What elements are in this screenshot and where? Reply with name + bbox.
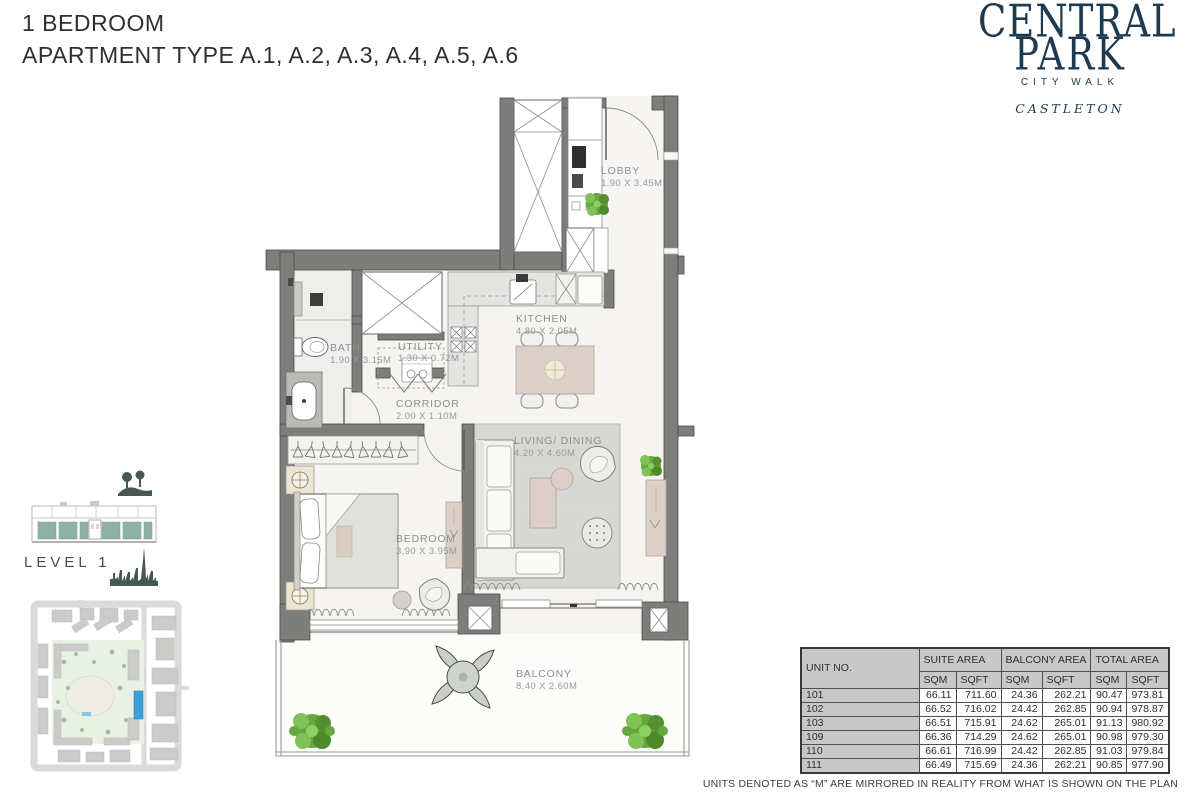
room-label-bath: BATH: [330, 342, 360, 354]
toilet-icon: [294, 338, 328, 357]
level-label: LEVEL 1: [24, 554, 111, 571]
table-row: 102 66.52 716.02 24.42 262.85 90.94 978.…: [801, 702, 1169, 716]
bedroom-side-table: [393, 591, 411, 609]
mirror-disclaimer: UNITS DENOTED AS “M” ARE MIRRORED IN REA…: [703, 778, 1178, 790]
room-dims-living: 4.20 X 4.60M: [514, 448, 575, 459]
room-dims-balcony: 8.40 X 2.60M: [516, 681, 577, 692]
table-row: 111 66.49 715.69 24.36 262.21 90.85 977.…: [801, 758, 1169, 773]
side-table: [551, 468, 573, 490]
unit-cell: 111: [801, 758, 919, 773]
hood-hatch-icon: [556, 274, 576, 304]
plant-lobby: [585, 193, 609, 216]
page-title: 1 BEDROOM APARTMENT TYPE A.1, A.2, A.3, …: [22, 10, 519, 69]
sqm-header: SQM: [1091, 671, 1127, 688]
room-dims-utility: 1.30 X 0.72M: [398, 353, 459, 364]
room-dims-bedroom: 3.90 X 3.95M: [396, 546, 457, 557]
nightstand: [286, 466, 314, 494]
sqm-header: SQM: [919, 671, 956, 688]
plant-balcony-right: [622, 713, 668, 749]
unit-cell: 109: [801, 730, 919, 744]
floor-plan: LOBBY 1.90 X 3.45M KITCHEN 4.80 X 2.05M …: [248, 85, 712, 775]
sqm-header: SQM: [1001, 671, 1042, 688]
room-dims-bath: 1.90 X 3.15M: [330, 355, 391, 366]
table-row: 109 66.36 714.29 24.62 265.01 90.98 979.…: [801, 730, 1169, 744]
brand-logo: CENTRAL PARK CITY WALK CASTLETON: [978, 2, 1162, 116]
fridge-icon: [578, 276, 602, 304]
duct-box: [566, 228, 608, 273]
logo-park: PARK: [978, 34, 1162, 75]
room-label-bedroom: BEDROOM: [396, 533, 456, 545]
shower-panel-icon: [294, 282, 302, 316]
unit-cell: 102: [801, 702, 919, 716]
unit-cell: 101: [801, 688, 919, 702]
balcony-area-header: BALCONY AREA: [1001, 648, 1091, 671]
room-label-living: LIVING/ DINING: [514, 435, 602, 447]
room-dims-corridor: 2.00 X 1.10M: [396, 411, 457, 422]
unit-cell: 103: [801, 716, 919, 730]
room-label-kitchen: KITCHEN: [516, 313, 568, 325]
bed: [294, 492, 398, 590]
site-map: [24, 592, 189, 780]
title-line2: APARTMENT TYPE A.1, A.2, A.3, A.4, A.5, …: [22, 42, 519, 69]
unit-cell: 110: [801, 744, 919, 758]
wardrobe: [288, 436, 418, 464]
logo-castleton: CASTLETON: [978, 101, 1162, 116]
room-dims-kitchen: 4.80 X 2.05M: [516, 326, 577, 337]
city-skyline-icon: [110, 546, 158, 586]
sqft-header: SQFT: [1042, 671, 1091, 688]
table-row: 101 66.11 711.60 24.36 262.21 90.47 973.…: [801, 688, 1169, 702]
coffee-table: [530, 478, 556, 528]
unit-area-table: UNIT NO. SUITE AREA BALCONY AREA TOTAL A…: [800, 647, 1170, 774]
sqft-header: SQFT: [1127, 671, 1169, 688]
bedroom-sliding-door: [310, 620, 458, 632]
building-cross-section: [30, 500, 158, 550]
title-line1: 1 BEDROOM: [22, 10, 519, 37]
living-tv-console: [646, 480, 666, 556]
room-dims-lobby: 1.90 X 3.45M: [601, 178, 662, 189]
room-label-corridor: CORRIDOR: [396, 398, 460, 410]
level-key: LEVEL 1: [24, 466, 194, 786]
shower-head-icon: [310, 293, 323, 306]
stair-shaft: [514, 100, 562, 252]
vanity-sink-icon: [286, 372, 322, 428]
table-group-header-row: UNIT NO. SUITE AREA BALCONY AREA TOTAL A…: [801, 648, 1169, 671]
table-row: 103 66.51 715.91 24.62 265.01 91.13 980.…: [801, 716, 1169, 730]
plant-balcony-left: [289, 713, 335, 749]
floor-plan-page: 1 BEDROOM APARTMENT TYPE A.1, A.2, A.3, …: [0, 0, 1200, 800]
room-label-utility: UTILITY: [398, 341, 443, 353]
ottoman: [582, 518, 612, 548]
site-map-highlight: [134, 691, 143, 719]
plant-living: [640, 455, 662, 477]
total-area-header: TOTAL AREA: [1091, 648, 1169, 671]
room-label-balcony: BALCONY: [516, 668, 572, 680]
dining-chair: [521, 394, 543, 408]
park-trees-icon: [118, 470, 152, 496]
room-label-lobby: LOBBY: [601, 165, 640, 177]
unit-no-header: UNIT NO.: [801, 648, 919, 688]
sqft-header: SQFT: [956, 671, 1001, 688]
dining-chair: [556, 394, 578, 408]
table-row: 110 66.61 716.99 24.42 262.85 91.03 979.…: [801, 744, 1169, 758]
suite-area-header: SUITE AREA: [919, 648, 1001, 671]
corridor-shaft: [362, 272, 442, 334]
